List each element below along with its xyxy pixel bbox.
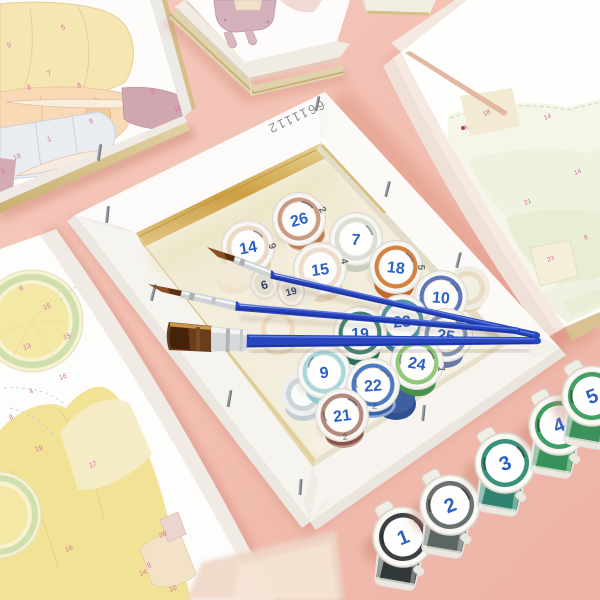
svg-text:5: 5 xyxy=(415,264,426,270)
svg-text:24: 24 xyxy=(407,355,428,375)
svg-text:14: 14 xyxy=(238,239,259,259)
svg-text:22: 22 xyxy=(364,377,383,395)
svg-text:9: 9 xyxy=(319,365,330,383)
svg-text:7: 7 xyxy=(351,232,361,250)
svg-text:10: 10 xyxy=(431,289,450,307)
svg-text:18: 18 xyxy=(386,259,406,278)
svg-text:2: 2 xyxy=(372,401,377,411)
svg-text:15: 15 xyxy=(310,261,330,280)
svg-text:21: 21 xyxy=(332,407,352,426)
